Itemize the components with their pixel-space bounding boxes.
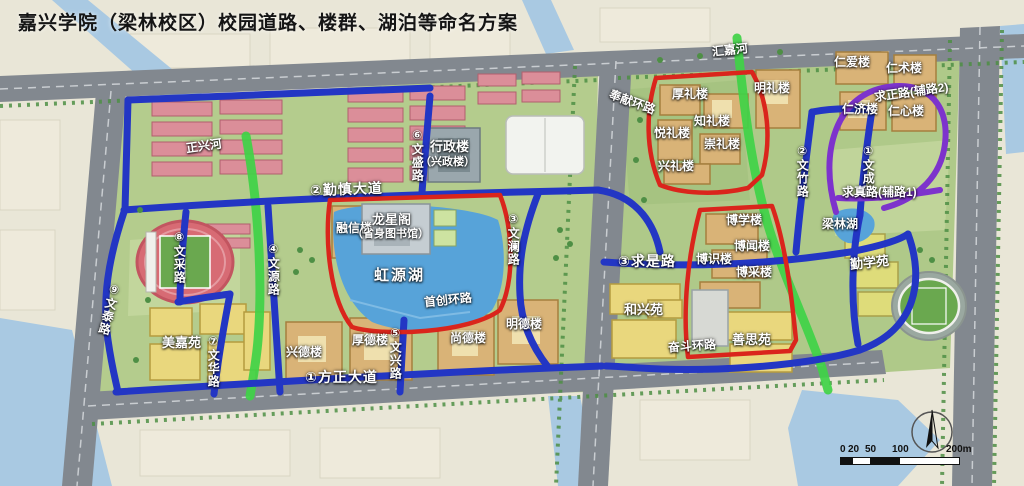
scale-tick-100: 100 xyxy=(892,444,909,455)
scale-tick-200: 200m xyxy=(946,444,972,455)
scale-tick-50: 50 xyxy=(865,444,876,455)
scale-bar-graphic xyxy=(840,457,960,465)
scale-tick-20: 20 xyxy=(848,444,859,455)
scale-tick-0: 0 xyxy=(840,444,846,455)
campus-map: 嘉兴学院（梁林校区）校园道路、楼群、湖泊等命名方案 正兴河 汇嘉河 虹源湖 梁林… xyxy=(0,0,1024,486)
scale-bar: 0 20 50 100 200m xyxy=(840,444,970,465)
map-graphics xyxy=(0,0,1024,486)
scale-ticks: 0 20 50 100 200m xyxy=(840,444,970,456)
map-title: 嘉兴学院（梁林校区）校园道路、楼群、湖泊等命名方案 xyxy=(18,8,518,35)
east-stadium xyxy=(892,272,966,340)
